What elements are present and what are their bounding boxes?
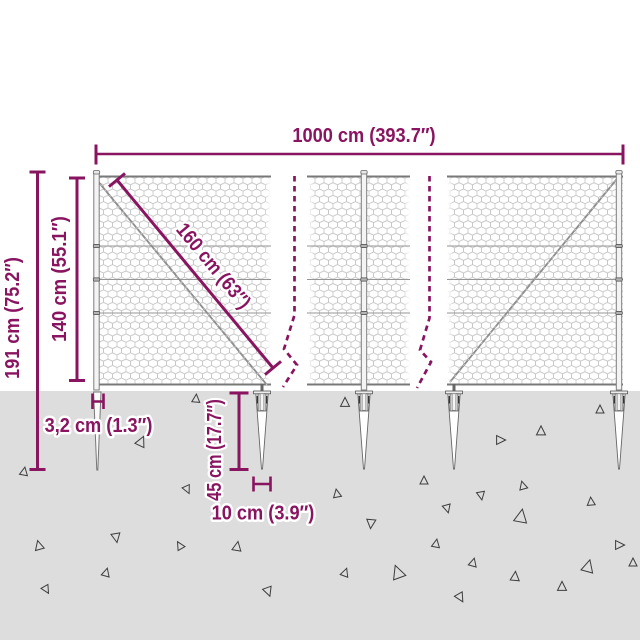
svg-text:45 cm (17.7″): 45 cm (17.7″): [202, 399, 225, 501]
svg-text:10 cm (3.9″): 10 cm (3.9″): [212, 503, 315, 525]
svg-text:140 cm (55.1″): 140 cm (55.1″): [49, 216, 71, 342]
svg-text:1000 cm (393.7″): 1000 cm (393.7″): [292, 125, 435, 147]
svg-text:3,2 cm (1.3″): 3,2 cm (1.3″): [45, 415, 153, 437]
svg-text:191 cm (75.2″): 191 cm (75.2″): [2, 257, 24, 379]
